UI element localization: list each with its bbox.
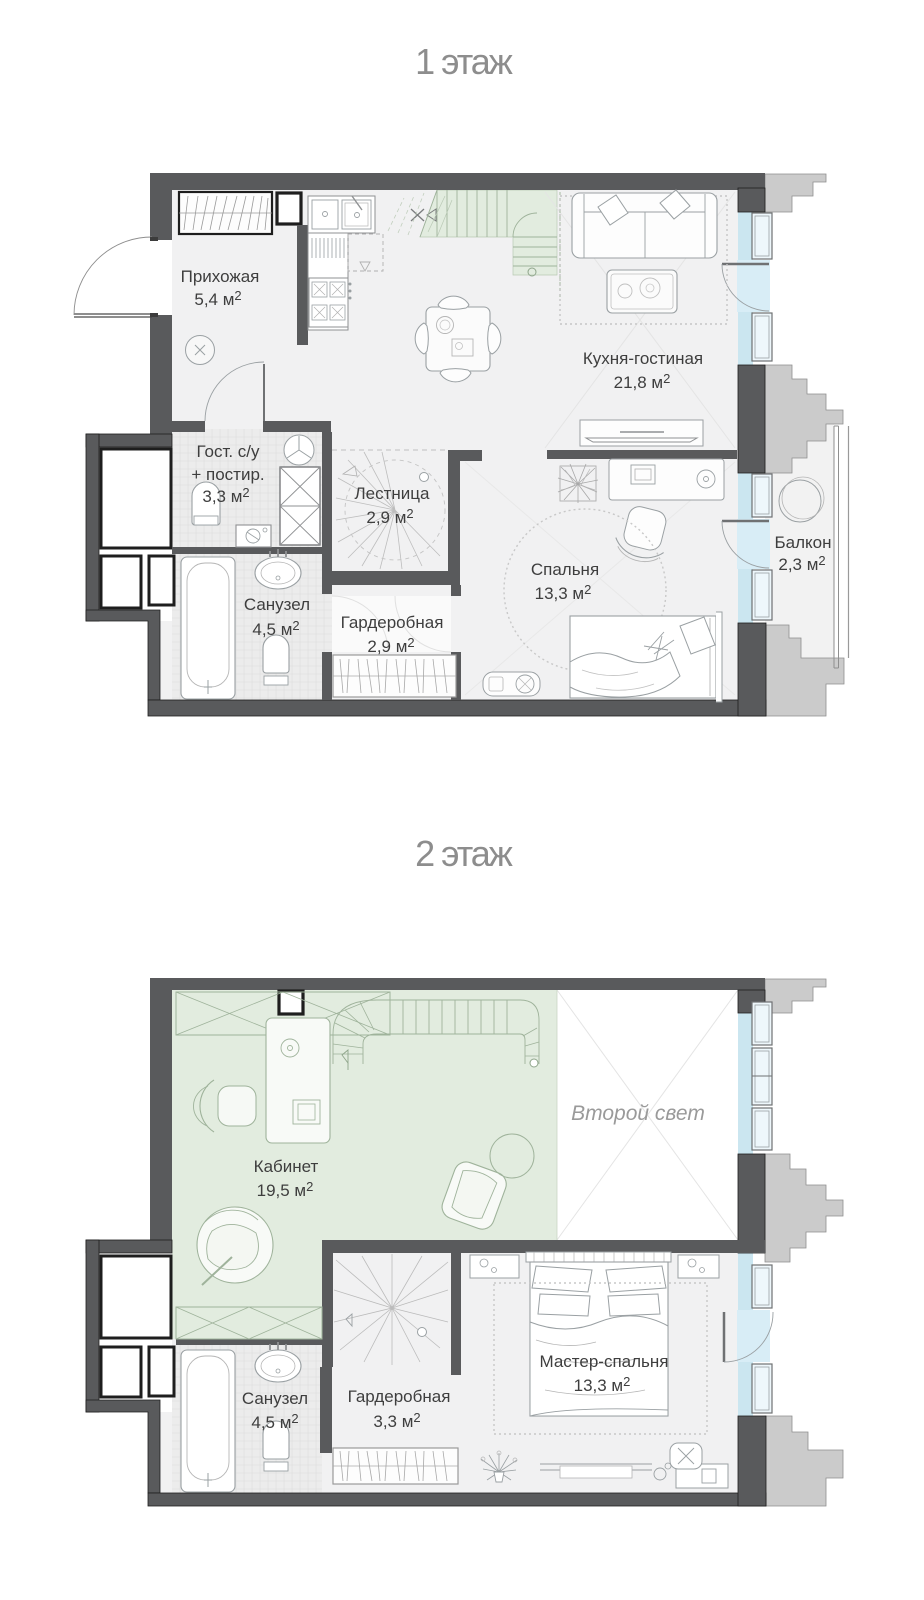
svg-text:21,8 м2: 21,8 м2 bbox=[614, 371, 671, 392]
svg-text:13,3 м2: 13,3 м2 bbox=[535, 582, 592, 603]
svg-text:1 этаж: 1 этаж bbox=[415, 41, 513, 82]
svg-text:Кухня-гостиная: Кухня-гостиная bbox=[583, 349, 703, 368]
svg-text:13,3 м2: 13,3 м2 bbox=[574, 1374, 631, 1395]
svg-text:Прихожая: Прихожая bbox=[181, 267, 260, 286]
svg-text:Спальня: Спальня bbox=[531, 560, 599, 579]
svg-text:Мастер-спальня: Мастер-спальня bbox=[539, 1352, 668, 1371]
svg-text:Гардеробная: Гардеробная bbox=[348, 1387, 451, 1406]
svg-text:2 этаж: 2 этаж bbox=[415, 833, 513, 874]
svg-text:Санузел: Санузел bbox=[244, 595, 310, 614]
svg-text:+ постир.: + постир. bbox=[191, 465, 264, 484]
svg-text:Балкон: Балкон bbox=[774, 533, 831, 552]
svg-text:Второй свет: Второй свет bbox=[571, 1102, 705, 1125]
svg-text:19,5 м2: 19,5 м2 bbox=[257, 1179, 314, 1200]
svg-text:Гардеробная: Гардеробная bbox=[341, 613, 444, 632]
svg-text:Санузел: Санузел bbox=[242, 1389, 308, 1408]
svg-text:Лестница: Лестница bbox=[355, 484, 431, 503]
svg-text:Кабинет: Кабинет bbox=[254, 1157, 319, 1176]
svg-text:Гост. с/у: Гост. с/у bbox=[196, 442, 260, 461]
